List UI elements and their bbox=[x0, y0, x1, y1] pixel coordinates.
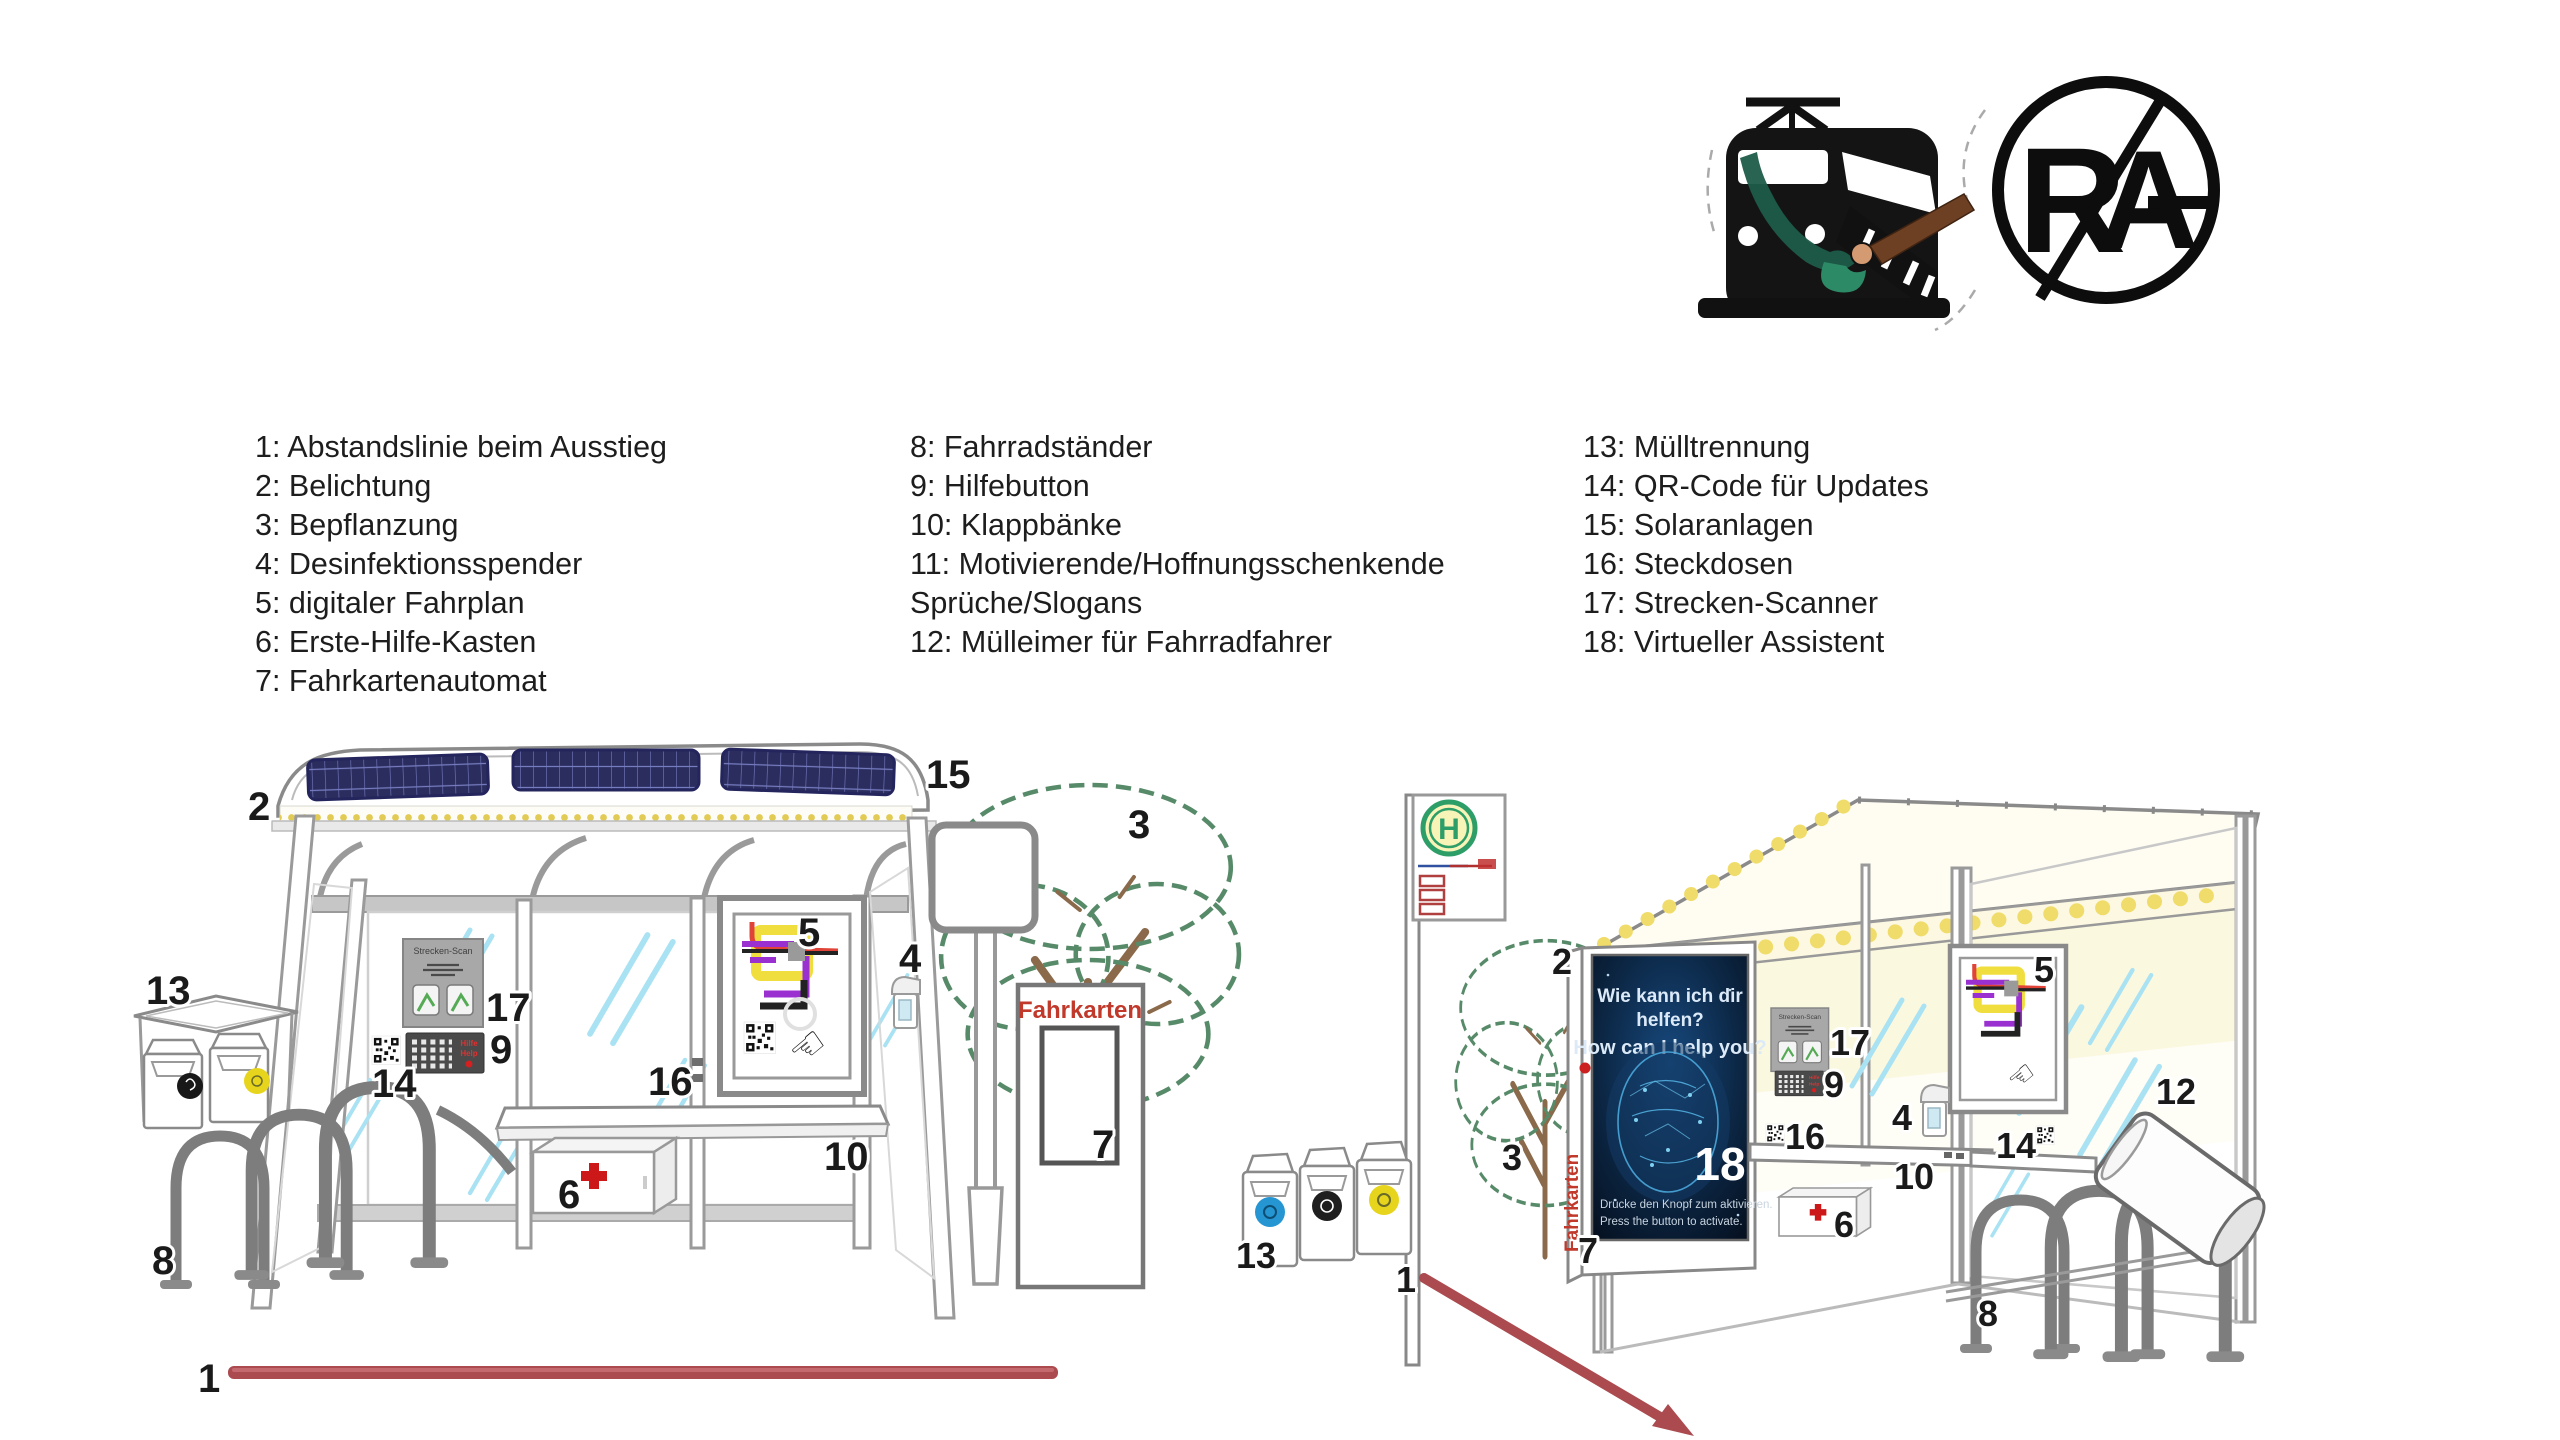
callout-3: 3 bbox=[1128, 803, 1150, 847]
callout-9: 9 bbox=[490, 1028, 512, 1072]
callout-5-right: 5 bbox=[2034, 949, 2054, 990]
help-keypad bbox=[406, 1033, 484, 1073]
callout-5: 5 bbox=[798, 911, 820, 955]
activation-button bbox=[1580, 1063, 1591, 1074]
callout-13: 13 bbox=[146, 969, 191, 1013]
poster-title-de-2: helfen? bbox=[1636, 1010, 1704, 1031]
digital-fahrplan: ☜ bbox=[720, 898, 864, 1094]
poster-title-de-1: Wie kann ich dir bbox=[1597, 986, 1743, 1007]
train-paintbrush-logo bbox=[1698, 102, 1985, 330]
sanitizer-dispenser bbox=[892, 977, 920, 1028]
callout-16: 16 bbox=[648, 1060, 693, 1104]
distance-line-right bbox=[1424, 1278, 1694, 1436]
callout-4: 4 bbox=[899, 937, 922, 981]
callout-17-right: 17 bbox=[1830, 1022, 1870, 1063]
left-shelter: ☜ bbox=[252, 744, 954, 1318]
callout-3-right: 3 bbox=[1502, 1137, 1522, 1178]
poster-footer-en: Press the button to activate. bbox=[1600, 1216, 1743, 1228]
distance-line-left bbox=[228, 1366, 1058, 1379]
qr-code-updates bbox=[372, 1036, 401, 1065]
sanitizer-dispenser-right bbox=[1921, 1085, 1949, 1136]
help-keypad-right bbox=[1775, 1071, 1823, 1096]
fahrkarten-label: Fahrkarten bbox=[1018, 997, 1142, 1024]
callout-1: 1 bbox=[198, 1357, 220, 1401]
strecken-scanner-panel-right bbox=[1771, 1008, 1829, 1071]
callout-4-right: 4 bbox=[1892, 1097, 1912, 1138]
callout-15: 15 bbox=[926, 753, 971, 797]
callout-9-right: 9 bbox=[1824, 1064, 1844, 1105]
callout-14: 14 bbox=[372, 1062, 417, 1106]
callout-16-right: 16 bbox=[1785, 1116, 1825, 1157]
rag-letter-a: A bbox=[2098, 121, 2199, 278]
callout-8: 8 bbox=[152, 1239, 174, 1283]
callout-2-right: 2 bbox=[1552, 941, 1572, 982]
callout-7: 7 bbox=[1092, 1123, 1114, 1167]
strecken-scanner-panel bbox=[403, 939, 483, 1027]
callout-1-right: 1 bbox=[1396, 1259, 1416, 1300]
callout-12-right: 12 bbox=[2156, 1071, 2196, 1112]
callout-8-right: 8 bbox=[1978, 1293, 1998, 1334]
callout-10-right: 10 bbox=[1894, 1156, 1934, 1197]
qr-code-socket-right bbox=[1766, 1124, 1785, 1143]
rag-logo: R A bbox=[1998, 82, 2214, 298]
callout-6: 6 bbox=[558, 1173, 580, 1217]
callout-2: 2 bbox=[248, 785, 270, 829]
ticket-machine-left: Fahrkarten bbox=[1018, 985, 1143, 1287]
callout-7-right: 7 bbox=[1578, 1230, 1598, 1271]
right-bus-stop: H Fahrkarten bbox=[1236, 795, 2275, 1436]
callout-13-right: 13 bbox=[1236, 1235, 1276, 1276]
first-aid-kit-right bbox=[1779, 1188, 1871, 1236]
callout-17: 17 bbox=[486, 986, 531, 1030]
callout-18: 18 bbox=[1694, 1138, 1745, 1190]
callout-10: 10 bbox=[824, 1135, 869, 1179]
bus-stop-concept-drawing: Hilfe Help Strecken-Scan bbox=[0, 0, 2560, 1440]
callout-14-right: 14 bbox=[1996, 1125, 2036, 1166]
qr-code-updates-right bbox=[2036, 1126, 2055, 1145]
first-aid-kit bbox=[533, 1138, 676, 1213]
shelter-roof bbox=[272, 744, 936, 831]
h-sign-letter: H bbox=[1438, 813, 1460, 846]
led-light-strip bbox=[280, 806, 912, 821]
poster-footer-de: Drücke den Knopf zum aktivieren. bbox=[1600, 1199, 1773, 1211]
callout-6-right: 6 bbox=[1834, 1204, 1854, 1245]
virtual-assistant-poster: Wie kann ich dir helfen? How can I help … bbox=[1573, 955, 1772, 1240]
